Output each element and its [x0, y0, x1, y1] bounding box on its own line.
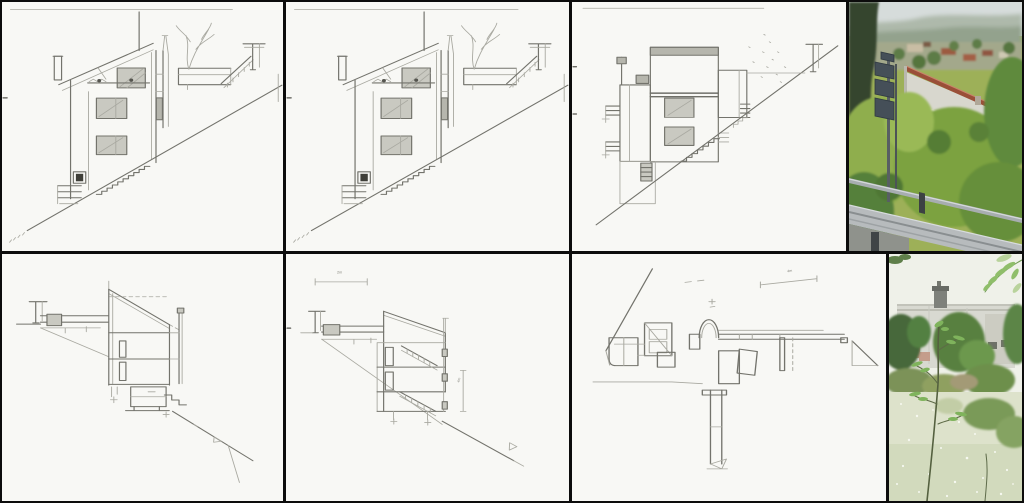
panel-section-sketch-1	[2, 254, 283, 501]
section-sketch-drawing-2	[286, 254, 569, 501]
panel-site-photo-lower	[889, 254, 1022, 501]
panel-plan-sketch: 4m	[572, 254, 886, 501]
plan-sketch-drawing	[572, 254, 886, 501]
panel-elevation-sketch-1	[2, 2, 283, 251]
site-photo-house-vegetation	[889, 254, 1022, 501]
elevation-sketch-drawing-2	[286, 2, 569, 251]
section-sketch-drawing-1	[2, 254, 283, 501]
site-photo-hillside-house	[849, 2, 1022, 251]
panel-elevation-sketch-3	[572, 2, 846, 251]
dimension-label-plan: 4m	[787, 269, 792, 273]
elevation-sketch-drawing-1	[2, 2, 283, 251]
elevation-sketch-drawing-3	[572, 2, 846, 251]
panel-section-sketch-2: 2m 4m	[286, 254, 569, 501]
panel-elevation-sketch-2	[286, 2, 569, 251]
dimension-label-horizontal: 2m	[337, 271, 342, 275]
figure-collage: 2m 4m 4m	[0, 0, 1024, 503]
panel-site-photo-upper	[849, 2, 1022, 251]
